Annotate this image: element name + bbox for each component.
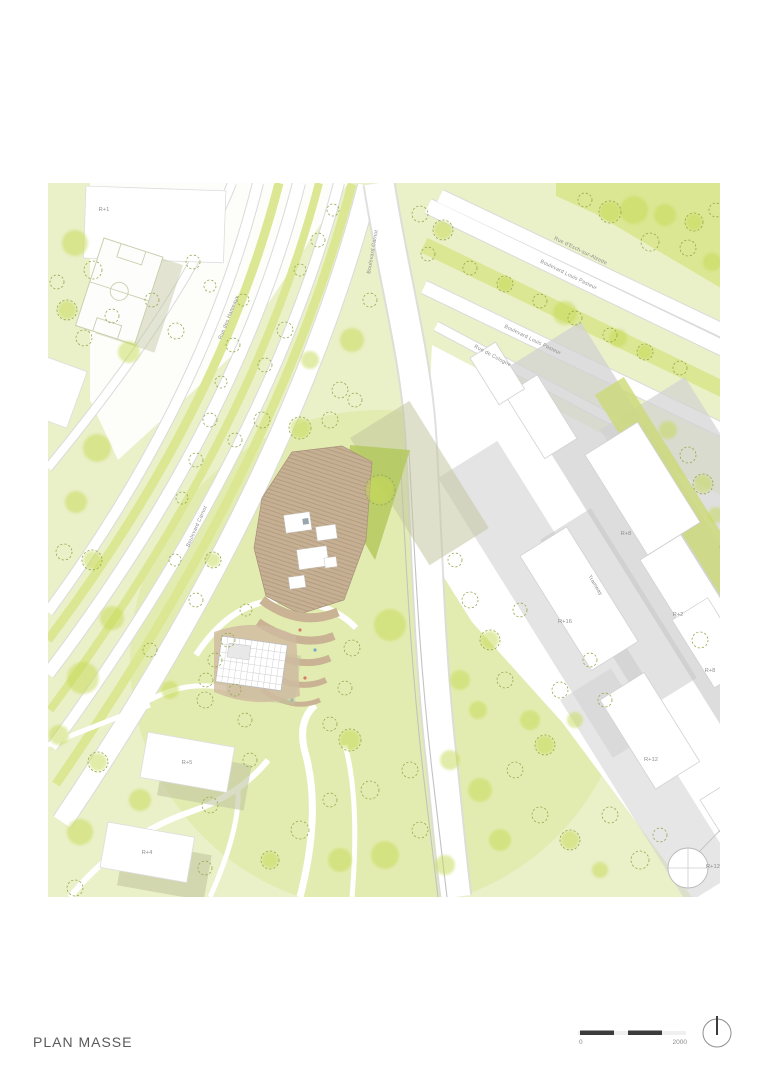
tree-icon xyxy=(301,351,319,369)
building-label: R+16 xyxy=(558,619,572,625)
plan-title: PLAN MASSE xyxy=(33,1034,132,1050)
tree-icon xyxy=(481,631,499,649)
map-area: Boulevard Carnot Rue d'Esch-sur-Alzette … xyxy=(23,183,768,910)
tree-icon xyxy=(561,831,579,849)
building-label: R+2 xyxy=(673,612,684,618)
scale-end-label: 2000 xyxy=(673,1039,688,1046)
tree-icon xyxy=(654,204,676,226)
tree-icon xyxy=(83,551,101,569)
tree-icon xyxy=(262,852,278,868)
tree-icon xyxy=(592,862,608,878)
tree-icon xyxy=(708,507,724,523)
tree-icon xyxy=(703,253,721,271)
tree-icon xyxy=(49,725,69,745)
tree-icon xyxy=(340,328,364,352)
tree-icon xyxy=(536,736,554,754)
tree-icon xyxy=(620,196,648,224)
tree-icon xyxy=(58,301,76,319)
tree-icon xyxy=(720,540,736,556)
building-label: R+4 xyxy=(142,850,154,856)
tree-icon xyxy=(100,606,124,630)
tree-icon xyxy=(290,418,310,438)
tree-icon xyxy=(489,829,511,851)
tree-icon xyxy=(609,329,627,347)
tree-icon xyxy=(67,819,93,845)
tree-icon xyxy=(468,778,492,802)
tree-icon xyxy=(435,855,455,875)
building-label: R+12 xyxy=(644,757,658,763)
tree-icon xyxy=(129,789,151,811)
building-label: R+1 xyxy=(99,207,110,213)
tree-icon xyxy=(450,670,470,690)
solar-roof-building xyxy=(214,625,301,705)
tree-icon xyxy=(553,301,577,325)
tree-icon xyxy=(118,341,140,363)
north-arrow-icon xyxy=(703,1016,731,1047)
tree-icon xyxy=(83,434,111,462)
scale-bar: 0 2000 xyxy=(578,1031,687,1047)
site-plan-map: Boulevard Carnot Rue d'Esch-sur-Alzette … xyxy=(0,0,768,1086)
tree-icon xyxy=(62,230,88,256)
tree-icon xyxy=(686,214,702,230)
tree-icon xyxy=(600,202,620,222)
tree-icon xyxy=(328,848,352,872)
tree-icon xyxy=(67,662,99,694)
tree-icon xyxy=(498,277,512,291)
building-label: R+12 xyxy=(706,864,720,870)
tree-icon xyxy=(440,750,460,770)
tree-icon xyxy=(731,569,749,587)
tree-icon xyxy=(659,421,677,439)
tree-icon xyxy=(206,553,220,567)
scale-start-label: 0 xyxy=(579,1039,583,1046)
building-label: R+5 xyxy=(182,760,193,766)
tree-icon xyxy=(469,701,487,719)
tree-icon xyxy=(374,609,406,641)
tree-icon xyxy=(65,491,87,513)
tree-icon xyxy=(638,345,652,359)
plan-sheet: Boulevard Carnot Rue d'Esch-sur-Alzette … xyxy=(0,0,768,1086)
tree-icon xyxy=(371,841,399,869)
tree-icon xyxy=(89,753,107,771)
tree-icon xyxy=(161,681,179,699)
tree-icon xyxy=(567,712,583,728)
tree-icon xyxy=(520,710,540,730)
tree-icon xyxy=(434,221,452,239)
tree-icon xyxy=(340,730,360,750)
tree-icon xyxy=(694,475,712,493)
building-label: R+8 xyxy=(705,668,716,674)
tree-icon xyxy=(366,476,394,504)
building-label: R+8 xyxy=(621,531,632,537)
